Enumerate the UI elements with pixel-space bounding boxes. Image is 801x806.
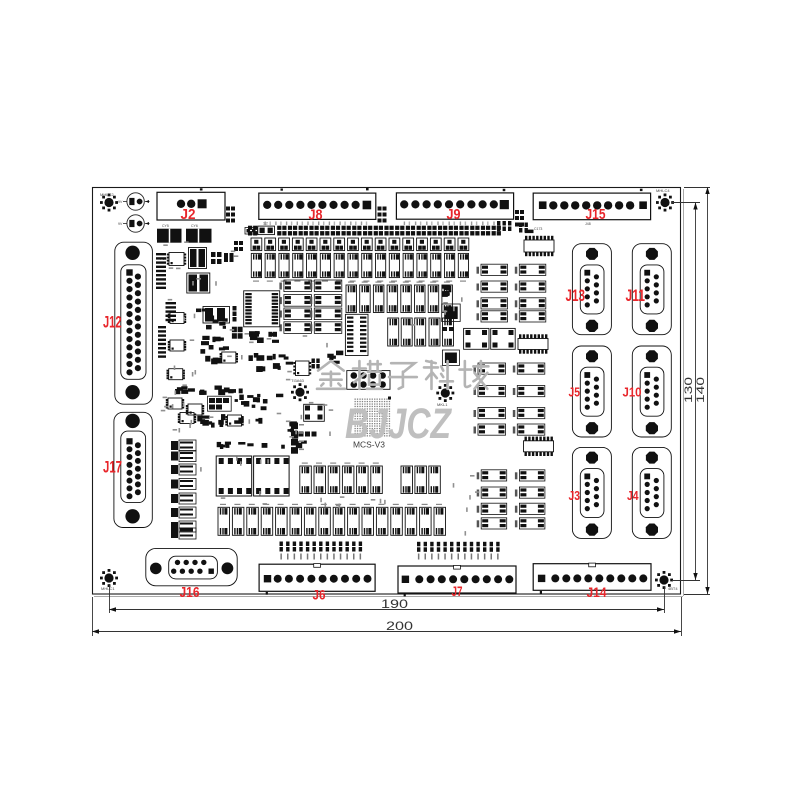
svg-text:CY5: CY5 [162,224,169,228]
svg-text:140: 140 [695,377,707,403]
svg-text:J16: J16 [180,584,200,601]
svg-text:J10: J10 [623,385,642,400]
svg-text:4BT4: 4BT4 [668,586,678,591]
svg-text:J13: J13 [566,286,586,305]
svg-text:CY6: CY6 [191,224,198,228]
svg-text:J17: J17 [103,458,122,477]
svg-text:J9: J9 [447,207,461,223]
svg-text:J3: J3 [569,488,581,503]
svg-text:1.2: 1.2 [263,222,268,226]
svg-text:MHLC2: MHLC2 [100,192,114,197]
svg-text:MHLC4: MHLC4 [656,188,670,193]
svg-text:J4: J4 [627,488,639,503]
svg-text:130: 130 [683,377,695,403]
svg-text:J14: J14 [587,584,607,600]
svg-text:J11: J11 [626,286,646,305]
svg-text:J7: J7 [452,583,463,599]
svg-text:J2: J2 [181,207,196,223]
svg-text:9V: 9V [118,222,123,226]
svg-text:J5: J5 [569,385,581,400]
svg-text:BJJCZ: BJJCZ [345,400,452,448]
svg-text:J15: J15 [586,207,606,223]
svg-text:TI3A63: TI3A63 [291,378,305,383]
svg-text:J8: J8 [309,208,323,224]
svg-text:200: 200 [386,621,413,633]
svg-text:J6: J6 [313,587,326,603]
svg-text:J12: J12 [103,313,122,332]
svg-text:C173: C173 [534,227,542,231]
svg-text:190: 190 [381,599,408,611]
svg-text:9V: 9V [118,200,123,204]
svg-text:MHLC1: MHLC1 [101,586,115,591]
